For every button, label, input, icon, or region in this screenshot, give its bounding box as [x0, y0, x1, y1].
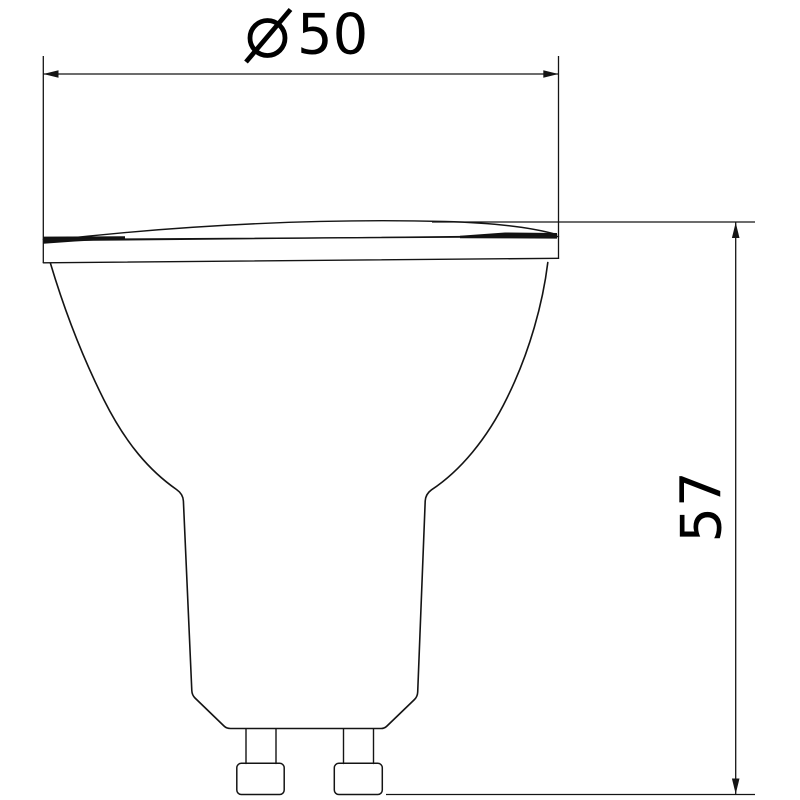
gu10-pin-left	[237, 729, 284, 795]
diameter-dimension-label: 50	[297, 3, 368, 68]
dim-arrow-left-icon	[43, 70, 58, 78]
dim-arrow-right-icon	[543, 70, 558, 78]
rim-bottom-line	[43, 258, 558, 263]
diameter-symbol-icon	[246, 10, 291, 63]
dim-arrow-down-icon	[732, 779, 740, 795]
drawing-canvas: 50 57	[0, 0, 800, 800]
gu10-pin-left-foot	[237, 763, 284, 794]
lamp-body-outline	[51, 263, 548, 729]
drawing-sheet: 50 57	[0, 0, 800, 800]
diameter-dimension: 50	[43, 3, 558, 264]
gu10-pin-right-foot	[334, 763, 382, 794]
height-dimension-label: 57	[670, 471, 735, 542]
dim-arrow-up-icon	[732, 223, 740, 239]
gu10-pin-right	[334, 729, 382, 795]
height-dimension: 57	[386, 222, 755, 795]
lamp-drawing	[43, 221, 558, 795]
